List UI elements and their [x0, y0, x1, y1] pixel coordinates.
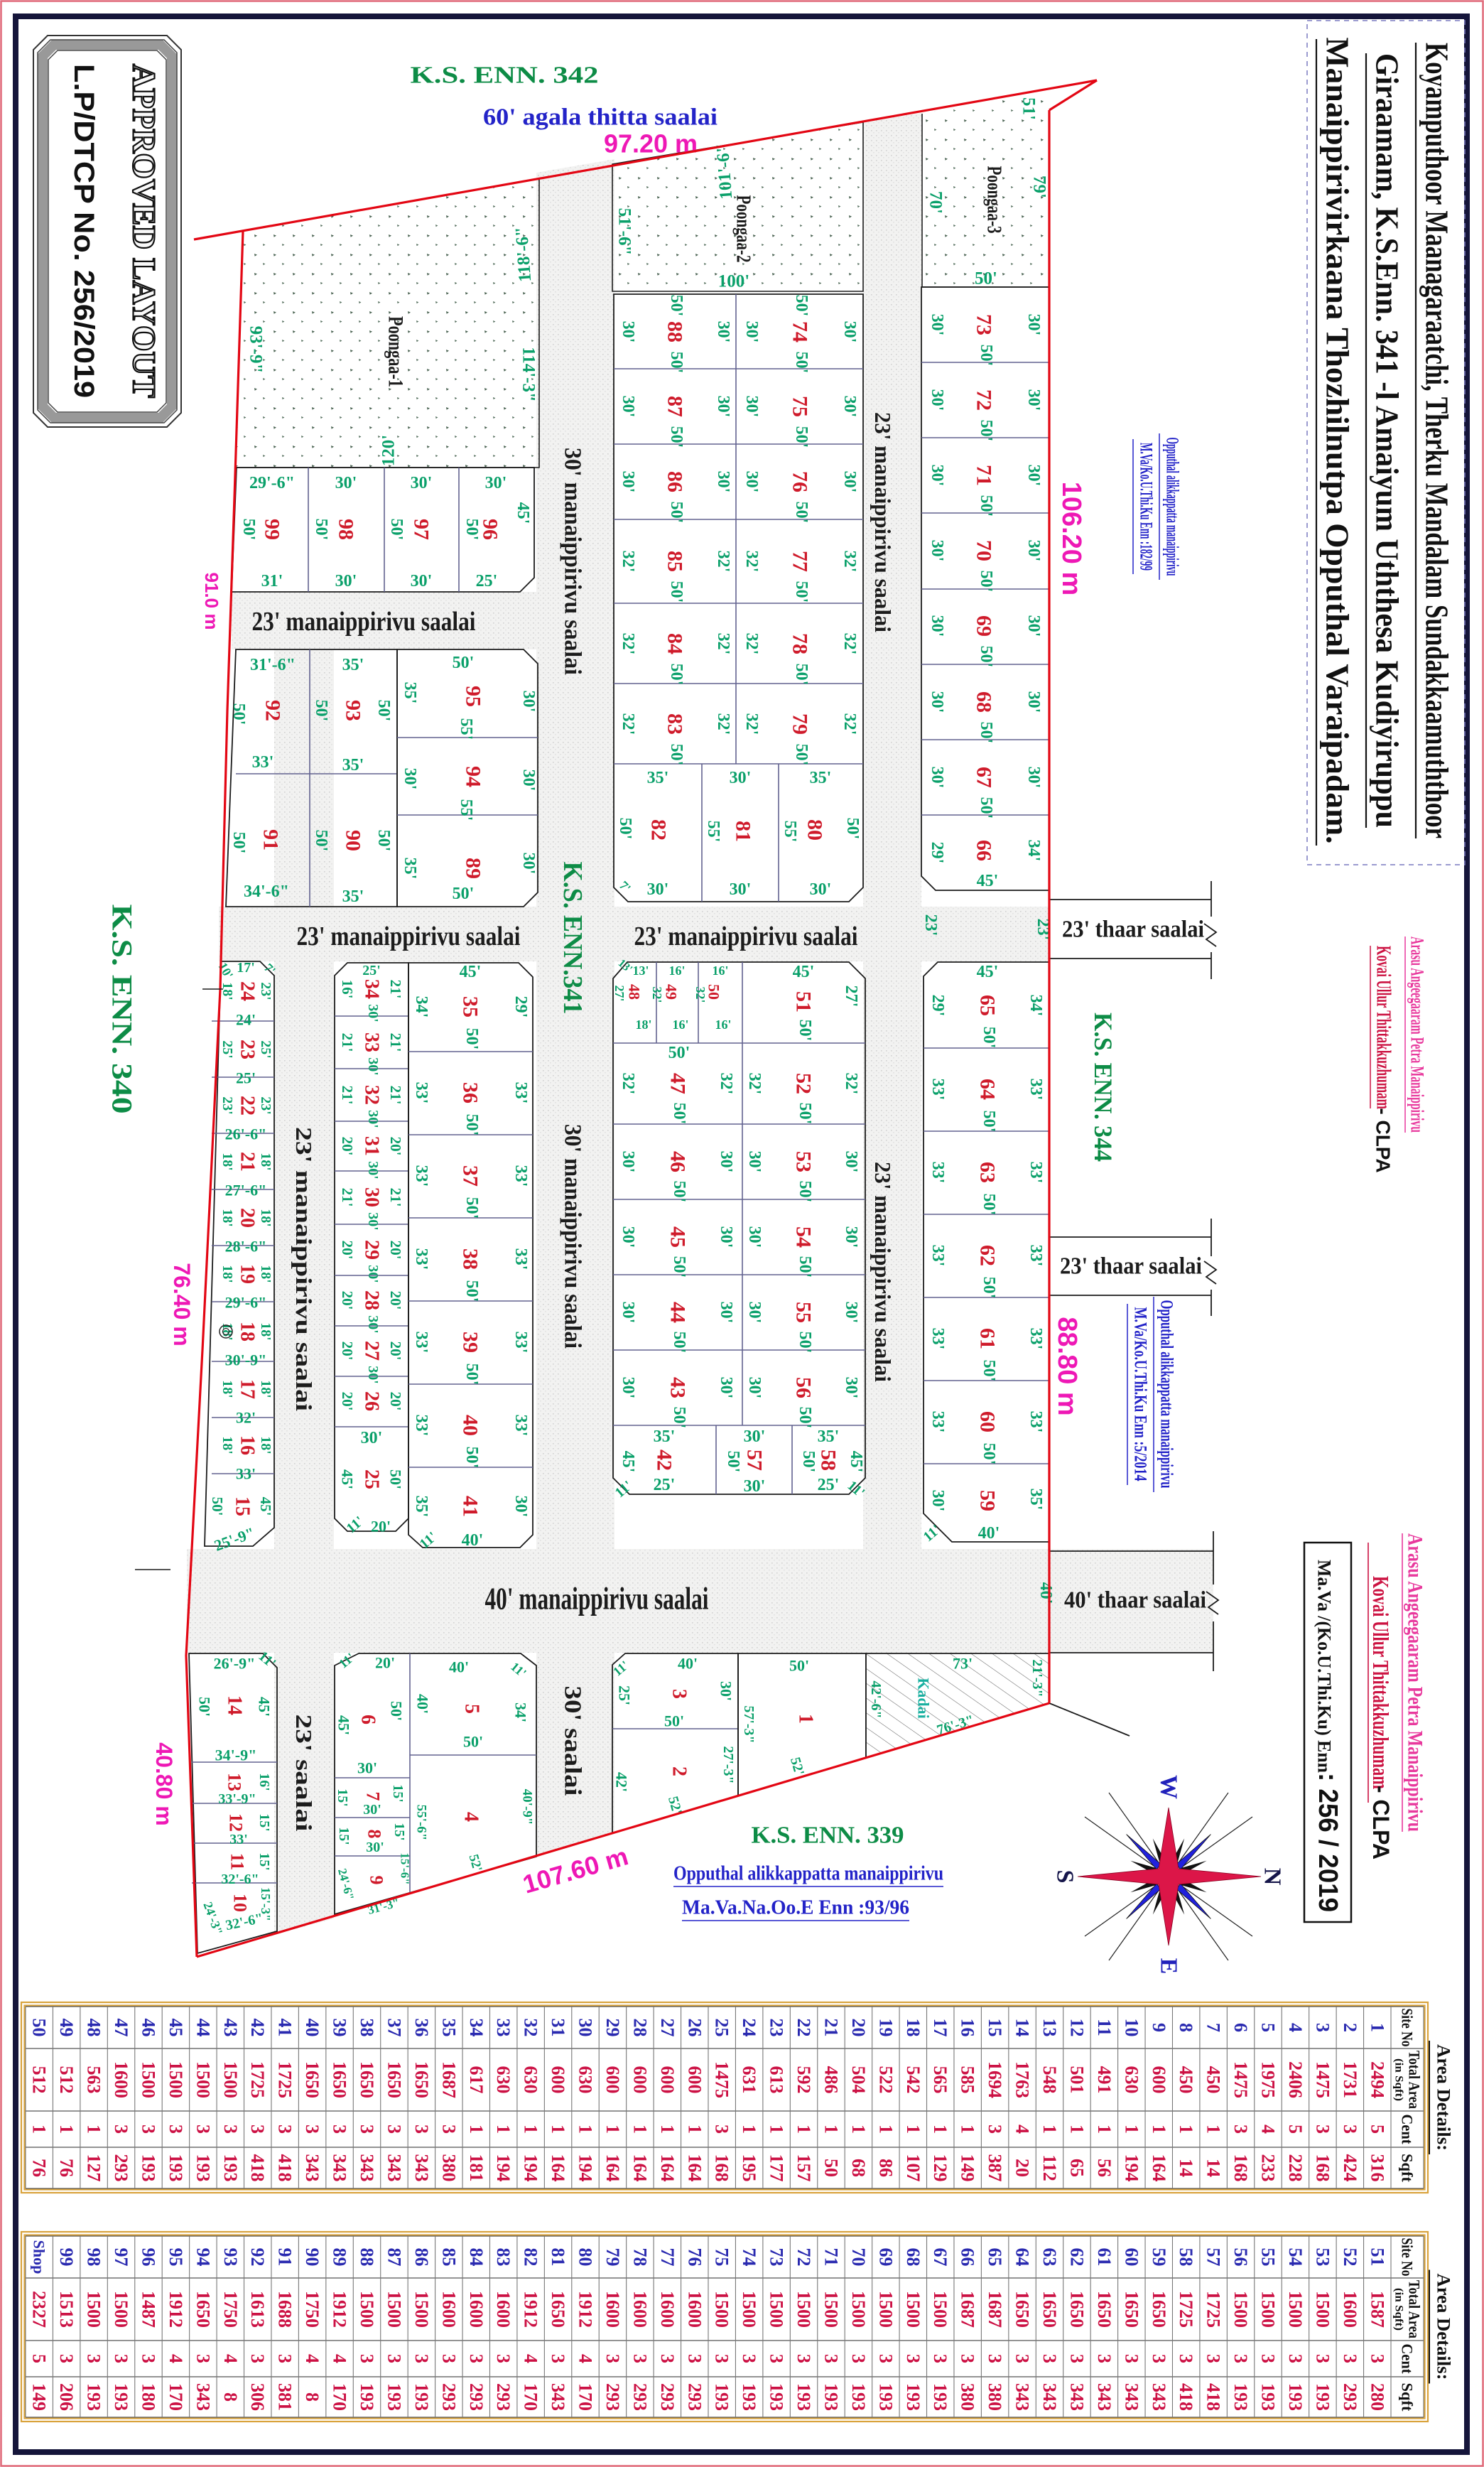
svg-text:21': 21' — [387, 1086, 404, 1105]
svg-text:30': 30' — [619, 1302, 637, 1324]
svg-text:1975: 1975 — [1258, 2061, 1279, 2098]
svg-text:343: 343 — [330, 2154, 350, 2182]
svg-text:67: 67 — [930, 2248, 950, 2267]
svg-text:94: 94 — [193, 2248, 213, 2267]
svg-text:30': 30' — [401, 768, 419, 790]
svg-text:50': 50' — [388, 1701, 406, 1721]
svg-text:50': 50' — [462, 1028, 481, 1050]
svg-text:23': 23' — [220, 1096, 235, 1115]
svg-text:64: 64 — [1012, 2248, 1033, 2267]
svg-text:3: 3 — [548, 2354, 568, 2363]
svg-text:Ma.Va.Na.Oo.E Enn :93/96: Ma.Va.Na.Oo.E Enn :93/96 — [682, 1897, 909, 1919]
svg-text:343: 343 — [548, 2383, 568, 2411]
svg-text:48: 48 — [84, 2019, 104, 2037]
svg-text:50': 50' — [980, 1027, 998, 1049]
svg-text:76: 76 — [684, 2248, 705, 2267]
svg-text:50': 50' — [980, 1194, 998, 1216]
svg-text:50': 50' — [792, 744, 811, 766]
svg-text:193: 193 — [357, 2383, 377, 2411]
svg-text:418: 418 — [247, 2154, 268, 2182]
svg-text:3: 3 — [712, 2125, 732, 2134]
svg-text:1: 1 — [575, 2125, 596, 2134]
svg-text:50': 50' — [799, 1451, 818, 1473]
svg-text:68: 68 — [903, 2248, 924, 2267]
svg-text:50: 50 — [820, 2159, 841, 2177]
svg-text:32': 32' — [840, 633, 859, 655]
svg-text:81: 81 — [732, 821, 755, 842]
svg-text:26: 26 — [684, 2019, 705, 2037]
svg-text:20': 20' — [339, 1342, 356, 1361]
svg-text:Area Details:: Area Details: — [1434, 2044, 1454, 2151]
svg-text:1587: 1587 — [1367, 2291, 1387, 2328]
svg-text:50': 50' — [670, 1407, 688, 1429]
svg-text:1475: 1475 — [712, 2061, 732, 2098]
svg-text:21'-3": 21'-3" — [1029, 1659, 1045, 1697]
svg-text:3: 3 — [657, 2354, 678, 2363]
svg-text:194: 194 — [575, 2154, 596, 2182]
svg-text:21: 21 — [237, 1152, 259, 1172]
svg-text:3: 3 — [1312, 2125, 1333, 2134]
svg-text:50': 50' — [977, 495, 995, 517]
svg-text:20: 20 — [848, 2019, 869, 2037]
svg-text:1600: 1600 — [602, 2291, 623, 2328]
svg-text:33: 33 — [361, 1032, 383, 1052]
svg-text:164: 164 — [684, 2154, 705, 2182]
svg-text:600: 600 — [629, 2066, 650, 2094]
svg-text:29'-6": 29'-6" — [225, 1294, 267, 1312]
svg-text:32': 32' — [714, 633, 732, 655]
svg-text:44: 44 — [193, 2019, 213, 2037]
svg-text:40.80 m: 40.80 m — [151, 1742, 177, 1825]
svg-text:Koyamputhoor Maanagaraatchi, T: Koyamputhoor Maanagaraatchi, Therku Mand… — [1419, 43, 1456, 838]
svg-text:43: 43 — [220, 2019, 241, 2037]
svg-text:32': 32' — [650, 986, 664, 1003]
svg-text:34': 34' — [512, 1702, 530, 1722]
svg-text:17': 17' — [237, 960, 255, 976]
svg-text:381: 381 — [275, 2383, 296, 2411]
svg-text:34': 34' — [1027, 995, 1045, 1017]
svg-text:30: 30 — [361, 1187, 383, 1207]
svg-text:23' manaippirivu saalai: 23' manaippirivu saalai — [291, 1127, 317, 1411]
svg-text:17: 17 — [930, 2019, 950, 2037]
svg-text:20': 20' — [339, 1392, 356, 1411]
svg-text:293: 293 — [657, 2383, 678, 2411]
svg-text:31: 31 — [548, 2019, 568, 2037]
svg-text:3: 3 — [138, 2354, 158, 2363]
svg-text:32: 32 — [521, 2019, 541, 2037]
svg-text:3: 3 — [138, 2125, 158, 2134]
svg-text:193: 193 — [84, 2383, 104, 2411]
svg-text:293: 293 — [466, 2383, 487, 2411]
svg-text:35: 35 — [438, 2019, 459, 2037]
svg-text:27: 27 — [361, 1341, 383, 1361]
svg-text:30': 30' — [928, 767, 946, 789]
svg-text:18': 18' — [220, 1436, 235, 1454]
svg-text:Shop: Shop — [31, 2240, 48, 2274]
svg-text:75: 75 — [789, 396, 812, 417]
svg-text:33': 33' — [412, 1415, 430, 1437]
svg-text:55: 55 — [1258, 2248, 1279, 2267]
svg-text:30': 30' — [363, 1802, 381, 1818]
svg-text:193: 193 — [384, 2383, 404, 2411]
svg-text:91: 91 — [275, 2248, 296, 2267]
svg-text:73': 73' — [953, 1655, 973, 1673]
svg-text:450: 450 — [1176, 2066, 1196, 2094]
svg-text:34': 34' — [1024, 840, 1043, 862]
svg-text:33': 33' — [511, 1082, 530, 1104]
svg-text:20': 20' — [371, 1518, 391, 1535]
svg-text:20': 20' — [339, 1241, 356, 1260]
svg-text:83: 83 — [664, 713, 687, 735]
svg-text:50: 50 — [29, 2019, 50, 2037]
svg-text:1650: 1650 — [384, 2061, 404, 2098]
svg-text:50': 50' — [667, 352, 686, 374]
svg-text:18': 18' — [635, 1017, 651, 1032]
svg-text:45': 45' — [460, 963, 482, 981]
svg-text:Poongaa-1: Poongaa-1 — [384, 316, 408, 387]
svg-text:68: 68 — [848, 2159, 869, 2177]
svg-text:600: 600 — [657, 2066, 678, 2094]
svg-text:15: 15 — [985, 2019, 1005, 2037]
svg-text:1500: 1500 — [166, 2061, 186, 2098]
svg-text:(in Sqft): (in Sqft) — [1393, 2058, 1405, 2101]
svg-text:343: 343 — [384, 2154, 404, 2182]
svg-text:8: 8 — [220, 2392, 241, 2402]
svg-text:30': 30' — [717, 1151, 735, 1173]
svg-text:3: 3 — [1012, 2354, 1033, 2363]
svg-text:30': 30' — [717, 1226, 735, 1248]
svg-text:18': 18' — [258, 1152, 273, 1171]
svg-text:35': 35' — [401, 682, 419, 704]
svg-text:1500: 1500 — [739, 2291, 759, 2328]
svg-text:522: 522 — [875, 2066, 896, 2094]
svg-text:3: 3 — [1285, 2354, 1306, 2363]
svg-text:387: 387 — [985, 2154, 1005, 2182]
svg-text:193: 193 — [1230, 2383, 1251, 2411]
svg-text:25: 25 — [712, 2019, 732, 2037]
svg-text:1: 1 — [29, 2125, 50, 2134]
svg-text:35': 35' — [401, 858, 419, 880]
svg-text:22: 22 — [237, 1096, 259, 1116]
svg-text:K.S. ENN. 340: K.S. ENN. 340 — [107, 905, 139, 1114]
svg-text:3: 3 — [493, 2354, 514, 2363]
svg-text:50': 50' — [977, 345, 995, 367]
svg-text:30': 30' — [744, 1427, 766, 1446]
svg-text:600: 600 — [1149, 2066, 1169, 2094]
svg-text:15': 15' — [391, 1823, 407, 1841]
svg-text:31'-6": 31'-6" — [250, 656, 296, 674]
svg-text:3: 3 — [1094, 2354, 1115, 2363]
svg-text:101'-6": 101'-6" — [713, 143, 736, 200]
svg-text:60: 60 — [976, 1411, 1000, 1432]
svg-text:50': 50' — [312, 519, 330, 541]
svg-text:18': 18' — [258, 1380, 273, 1398]
svg-text:1600: 1600 — [466, 2291, 487, 2328]
svg-text:76: 76 — [29, 2159, 50, 2177]
svg-text:15': 15' — [390, 1784, 406, 1803]
svg-text:164: 164 — [629, 2154, 650, 2182]
svg-text:18': 18' — [220, 1380, 235, 1398]
svg-text:316: 316 — [1367, 2154, 1387, 2182]
svg-text:50': 50' — [462, 1197, 481, 1219]
svg-text:40': 40' — [678, 1655, 698, 1673]
svg-text:Opputhal alikkappatta manaippi: Opputhal alikkappatta manaippirivu — [673, 1863, 943, 1885]
svg-text:1: 1 — [1203, 2125, 1224, 2134]
svg-text:3: 3 — [411, 2354, 432, 2363]
svg-text:70: 70 — [848, 2248, 869, 2267]
svg-text:1475: 1475 — [1230, 2061, 1251, 2098]
svg-text:193: 193 — [193, 2154, 213, 2182]
svg-text:30': 30' — [742, 396, 761, 418]
svg-text:30': 30' — [840, 321, 859, 343]
svg-text:50': 50' — [312, 700, 330, 722]
svg-text:50': 50' — [616, 818, 634, 840]
svg-text:177: 177 — [767, 2154, 787, 2182]
svg-text:30': 30' — [365, 1212, 381, 1231]
svg-text:30': 30' — [647, 880, 669, 899]
svg-text:46: 46 — [666, 1151, 690, 1172]
svg-text:78: 78 — [789, 633, 812, 654]
svg-text:50': 50' — [387, 519, 406, 541]
svg-text:Cent: Cent — [1399, 2115, 1417, 2145]
svg-text:20': 20' — [339, 1137, 356, 1156]
svg-text:18: 18 — [237, 1322, 259, 1342]
svg-text:Ma.Va /(Ko.U.Thi.Ku) Enn: Ma.Va /(Ko.U.Thi.Ku) Enn — [1314, 1560, 1335, 1774]
svg-text:18: 18 — [903, 2019, 924, 2037]
svg-text:30': 30' — [365, 1110, 381, 1128]
svg-text:86: 86 — [664, 471, 687, 492]
svg-text:32': 32' — [717, 1073, 735, 1095]
svg-text:33': 33' — [412, 1082, 430, 1104]
svg-text:1750: 1750 — [302, 2291, 323, 2328]
svg-text:168: 168 — [1230, 2154, 1251, 2182]
svg-text:168: 168 — [1312, 2154, 1333, 2182]
svg-text:W: W — [1156, 1775, 1182, 1799]
svg-text:1: 1 — [795, 1714, 817, 1724]
svg-text:6: 6 — [357, 1715, 379, 1724]
svg-text:30': 30' — [842, 1226, 860, 1248]
svg-text:57: 57 — [743, 1450, 767, 1471]
svg-text:1650: 1650 — [1094, 2291, 1115, 2328]
svg-text:33': 33' — [928, 1079, 947, 1101]
svg-text:50': 50' — [980, 1111, 998, 1133]
svg-text:54: 54 — [792, 1226, 816, 1248]
svg-text:76.40 m: 76.40 m — [169, 1263, 195, 1346]
svg-text:512: 512 — [56, 2066, 77, 2094]
svg-text:50': 50' — [664, 1712, 684, 1730]
svg-text:600: 600 — [548, 2066, 568, 2094]
svg-text:30': 30' — [717, 1681, 735, 1701]
svg-text:8: 8 — [302, 2392, 323, 2402]
svg-text:630: 630 — [521, 2066, 541, 2094]
svg-text:1500: 1500 — [767, 2291, 787, 2328]
svg-text:50': 50' — [975, 269, 997, 288]
svg-text:418: 418 — [1176, 2383, 1196, 2411]
svg-text:3: 3 — [629, 2354, 650, 2363]
svg-text:55: 55 — [792, 1302, 816, 1323]
svg-text:25: 25 — [361, 1469, 383, 1489]
svg-text:42: 42 — [247, 2019, 268, 2037]
svg-text:47: 47 — [666, 1073, 690, 1094]
svg-text:50': 50' — [196, 1697, 214, 1717]
svg-text:33': 33' — [928, 1328, 947, 1350]
svg-text:1650: 1650 — [302, 2061, 323, 2098]
svg-text:33': 33' — [511, 1415, 530, 1437]
svg-text:118'-6": 118'-6" — [512, 226, 535, 282]
svg-text:15': 15' — [256, 1813, 272, 1832]
svg-text:18': 18' — [258, 1436, 273, 1454]
svg-text:42': 42' — [613, 1772, 631, 1792]
svg-text:3: 3 — [875, 2354, 896, 2363]
svg-text:12: 12 — [226, 1813, 247, 1832]
svg-text:3: 3 — [794, 2354, 814, 2363]
svg-text:30': 30' — [928, 1490, 947, 1512]
svg-text:Site No: Site No — [1399, 2238, 1417, 2277]
svg-text:14: 14 — [1203, 2159, 1224, 2177]
svg-text:563: 563 — [84, 2066, 104, 2094]
svg-text:29: 29 — [361, 1240, 383, 1260]
svg-text:25': 25' — [654, 1476, 676, 1494]
svg-text:4: 4 — [521, 2354, 541, 2363]
svg-text:91: 91 — [259, 829, 283, 851]
svg-text:30' manaippirivu saalai: 30' manaippirivu saalai — [560, 448, 586, 675]
svg-text:10: 10 — [230, 1894, 251, 1912]
svg-text:50': 50' — [229, 703, 248, 725]
svg-text:1912: 1912 — [575, 2291, 596, 2328]
svg-text:343: 343 — [1149, 2383, 1169, 2411]
svg-text:3: 3 — [84, 2354, 104, 2363]
svg-text:450: 450 — [1203, 2066, 1224, 2094]
svg-text:30': 30' — [745, 1151, 764, 1173]
svg-text:99: 99 — [261, 519, 284, 540]
svg-text:50': 50' — [667, 295, 686, 317]
svg-text:27': 27' — [842, 986, 860, 1008]
svg-text:53: 53 — [792, 1151, 816, 1172]
svg-text:21': 21' — [339, 1033, 356, 1052]
svg-text:50': 50' — [670, 1181, 688, 1203]
svg-text:Opputhal alikkappatta manaippi: Opputhal alikkappatta manaippirivu — [1157, 1300, 1176, 1489]
svg-text:21': 21' — [339, 1188, 356, 1207]
svg-text:1: 1 — [657, 2125, 678, 2134]
svg-text:20': 20' — [387, 1291, 404, 1310]
svg-text:1: 1 — [602, 2125, 623, 2134]
svg-text:50': 50' — [668, 1044, 690, 1062]
svg-text:1500: 1500 — [848, 2291, 869, 2328]
svg-text:1600: 1600 — [438, 2291, 459, 2328]
svg-text:33': 33' — [412, 1248, 430, 1270]
svg-text:14: 14 — [1176, 2159, 1196, 2177]
svg-text:343: 343 — [411, 2154, 432, 2182]
svg-text:1: 1 — [1066, 2125, 1087, 2134]
svg-text:50': 50' — [980, 1277, 998, 1299]
svg-text:1: 1 — [1367, 2023, 1387, 2032]
svg-text:23': 23' — [921, 914, 940, 936]
svg-text:K.S. ENN. 339: K.S. ENN. 339 — [752, 1823, 904, 1849]
svg-text:33'-9": 33'-9" — [218, 1791, 256, 1807]
svg-text:73: 73 — [973, 314, 996, 335]
svg-text:16': 16' — [672, 1017, 688, 1032]
svg-text:25': 25' — [616, 1685, 634, 1705]
svg-text:49: 49 — [56, 2019, 77, 2037]
svg-text:27: 27 — [657, 2019, 678, 2037]
svg-text:55': 55' — [457, 799, 475, 821]
svg-text:1600: 1600 — [684, 2291, 705, 2328]
svg-text:74: 74 — [739, 2248, 759, 2267]
svg-text:380: 380 — [958, 2383, 978, 2411]
svg-text:585: 585 — [958, 2066, 978, 2094]
svg-text:30': 30' — [519, 770, 538, 792]
svg-text:1731: 1731 — [1340, 2061, 1360, 2098]
svg-text:3: 3 — [985, 2125, 1005, 2134]
svg-text:3: 3 — [193, 2354, 213, 2363]
svg-text:41: 41 — [275, 2019, 296, 2037]
svg-text:1912: 1912 — [166, 2291, 186, 2328]
svg-text:11: 11 — [227, 1853, 248, 1871]
svg-text:293: 293 — [111, 2154, 131, 2182]
svg-text:1500: 1500 — [1230, 2291, 1251, 2328]
svg-text:1: 1 — [794, 2125, 814, 2134]
svg-text:16: 16 — [958, 2019, 978, 2037]
svg-text:4: 4 — [1258, 2125, 1279, 2134]
svg-text:61: 61 — [976, 1328, 1000, 1349]
svg-text:1500: 1500 — [794, 2291, 814, 2328]
svg-text:30': 30' — [411, 572, 433, 590]
svg-text:20: 20 — [1012, 2159, 1033, 2177]
svg-text:85: 85 — [664, 551, 687, 572]
svg-text:1: 1 — [848, 2125, 869, 2134]
svg-text:38: 38 — [459, 1248, 482, 1270]
svg-text:1: 1 — [629, 2125, 650, 2134]
svg-text:18': 18' — [220, 982, 235, 1000]
svg-text:82: 82 — [647, 819, 671, 841]
svg-text:1: 1 — [1176, 2125, 1196, 2134]
svg-text:50': 50' — [843, 818, 862, 840]
svg-text:7: 7 — [1203, 2023, 1224, 2032]
svg-text:88: 88 — [664, 321, 687, 342]
svg-text:36: 36 — [459, 1082, 482, 1103]
svg-text:50': 50' — [789, 1657, 809, 1675]
svg-text:72: 72 — [794, 2248, 814, 2267]
svg-text:47: 47 — [111, 2019, 131, 2037]
svg-text:40': 40' — [414, 1694, 432, 1714]
svg-text:3: 3 — [193, 2125, 213, 2134]
svg-text:59: 59 — [1149, 2248, 1169, 2267]
svg-text:18': 18' — [258, 1265, 273, 1283]
svg-text:1688: 1688 — [275, 2291, 296, 2328]
svg-text:1687: 1687 — [438, 2061, 459, 2098]
svg-text:51: 51 — [792, 991, 816, 1013]
svg-text:30': 30' — [714, 321, 732, 343]
svg-text:33': 33' — [511, 1332, 530, 1354]
svg-text:30': 30' — [361, 1429, 383, 1447]
svg-text:21': 21' — [387, 980, 404, 999]
svg-text:80: 80 — [803, 819, 827, 841]
svg-text:87: 87 — [664, 396, 687, 417]
svg-text:60: 60 — [1121, 2248, 1142, 2267]
svg-text:418: 418 — [275, 2154, 296, 2182]
svg-text:45': 45' — [977, 872, 999, 890]
svg-text:164: 164 — [1149, 2154, 1169, 2182]
svg-text:79: 79 — [602, 2248, 623, 2267]
svg-text:3: 3 — [384, 2125, 404, 2134]
svg-text:44: 44 — [666, 1302, 690, 1323]
svg-text:55'-6": 55'-6" — [414, 1805, 429, 1841]
svg-text:50': 50' — [980, 1443, 998, 1465]
svg-text:24': 24' — [236, 1011, 256, 1029]
svg-text:106.20 m: 106.20 m — [1056, 482, 1086, 596]
svg-text:Arasu Angeegaaram Petra Manaip: Arasu Angeegaaram Petra Manaippirivu — [1407, 936, 1428, 1133]
svg-text:21': 21' — [339, 1086, 356, 1105]
